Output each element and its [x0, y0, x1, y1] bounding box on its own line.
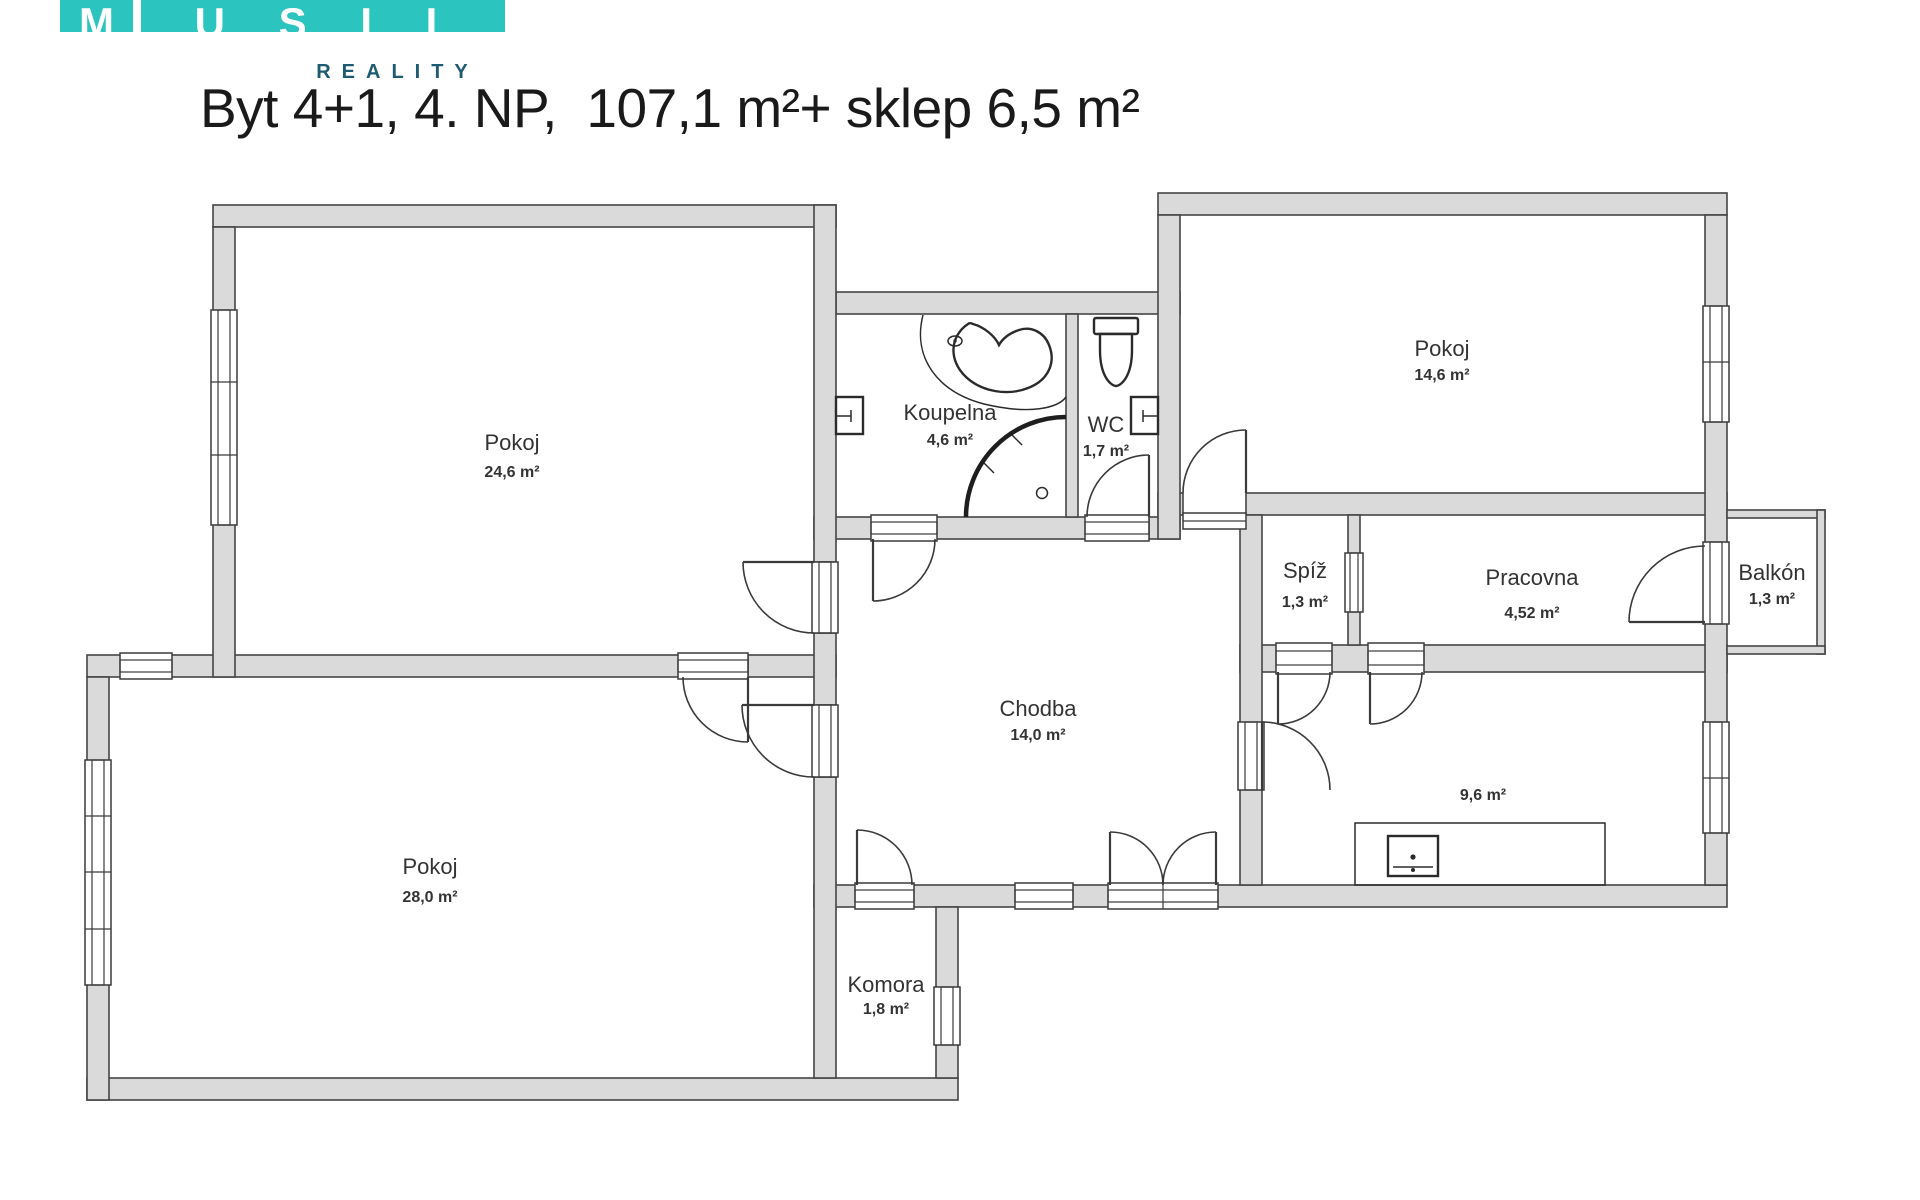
wall: [87, 655, 683, 677]
window: [1015, 883, 1073, 909]
door-frame: [1183, 513, 1246, 529]
window: [1703, 722, 1729, 833]
door-frame: [871, 515, 937, 541]
wall: [87, 1078, 958, 1100]
room-label-area: 14,6 m²: [1414, 367, 1469, 384]
room-label-name: Pokoj: [484, 430, 539, 455]
room-label-name: WC: [1088, 412, 1125, 437]
wall: [1158, 193, 1727, 215]
wall: [1330, 645, 1370, 672]
room-label-area: 1,3 m²: [1749, 591, 1795, 608]
room-label-name: Pokoj: [1414, 336, 1469, 361]
wall: [1216, 885, 1727, 907]
wall: [912, 885, 1110, 907]
door-frame: [812, 562, 838, 633]
window: [1345, 553, 1363, 612]
room-label-name: Pracovna: [1486, 565, 1580, 590]
door-frame: [1108, 883, 1218, 909]
wall: [1066, 314, 1078, 517]
door-frame: [1703, 542, 1729, 624]
wall: [814, 205, 836, 562]
room-label-area: 1,8 m²: [863, 1001, 909, 1018]
room-label-area: 28,0 m²: [402, 889, 457, 906]
sink-icon: [836, 397, 863, 434]
room-label-area: 1,3 m²: [1282, 594, 1328, 611]
room-pokoj-2: [109, 677, 814, 1078]
door-frame: [678, 653, 748, 679]
wall: [1158, 215, 1180, 539]
wall: [213, 205, 836, 227]
balcony-wall: [1727, 646, 1825, 654]
sink-icon: [1131, 397, 1158, 434]
door-frame: [855, 883, 914, 909]
room-label-name: Spíž: [1283, 558, 1327, 583]
wall: [814, 633, 836, 705]
page: M U S I L REALITY Byt 4+1, 4. NP, 107,1 …: [0, 0, 1920, 1200]
balcony-wall: [1817, 510, 1825, 654]
room-label-area: 4,52 m²: [1504, 605, 1559, 622]
room-label-name: Pokoj: [402, 854, 457, 879]
wall: [836, 292, 1180, 314]
wall: [1246, 493, 1727, 515]
window: [211, 310, 237, 525]
door-frame: [812, 705, 838, 777]
wall: [1422, 645, 1727, 672]
room-label-area: 4,6 m²: [927, 432, 973, 449]
room-label-name: Komora: [847, 972, 925, 997]
room-label-name: Balkón: [1738, 560, 1805, 585]
room-label-area: 24,6 m²: [484, 464, 539, 481]
window: [1703, 306, 1729, 422]
door-frame: [1238, 722, 1264, 790]
door-frame: [1368, 643, 1424, 674]
room-label-name: Chodba: [999, 696, 1077, 721]
wall: [935, 517, 1087, 539]
room-label-area: 9,6 m²: [1460, 787, 1506, 804]
stove-icon: [1388, 836, 1438, 876]
wall: [814, 777, 836, 1078]
wall: [1240, 515, 1262, 885]
window: [85, 760, 111, 985]
balcony-wall: [1727, 510, 1825, 518]
room-label-area: 14,0 m²: [1010, 727, 1065, 744]
window: [934, 987, 960, 1045]
window: [120, 653, 172, 679]
door-frame: [1085, 515, 1149, 541]
door-frame: [1276, 643, 1332, 674]
room-label-name: Koupelna: [904, 400, 998, 425]
room-label-area: 1,7 m²: [1083, 443, 1129, 460]
floor-plan: Pokoj 24,6 m² Pokoj 28,0 m² Koupelna 4,6…: [0, 0, 1920, 1200]
